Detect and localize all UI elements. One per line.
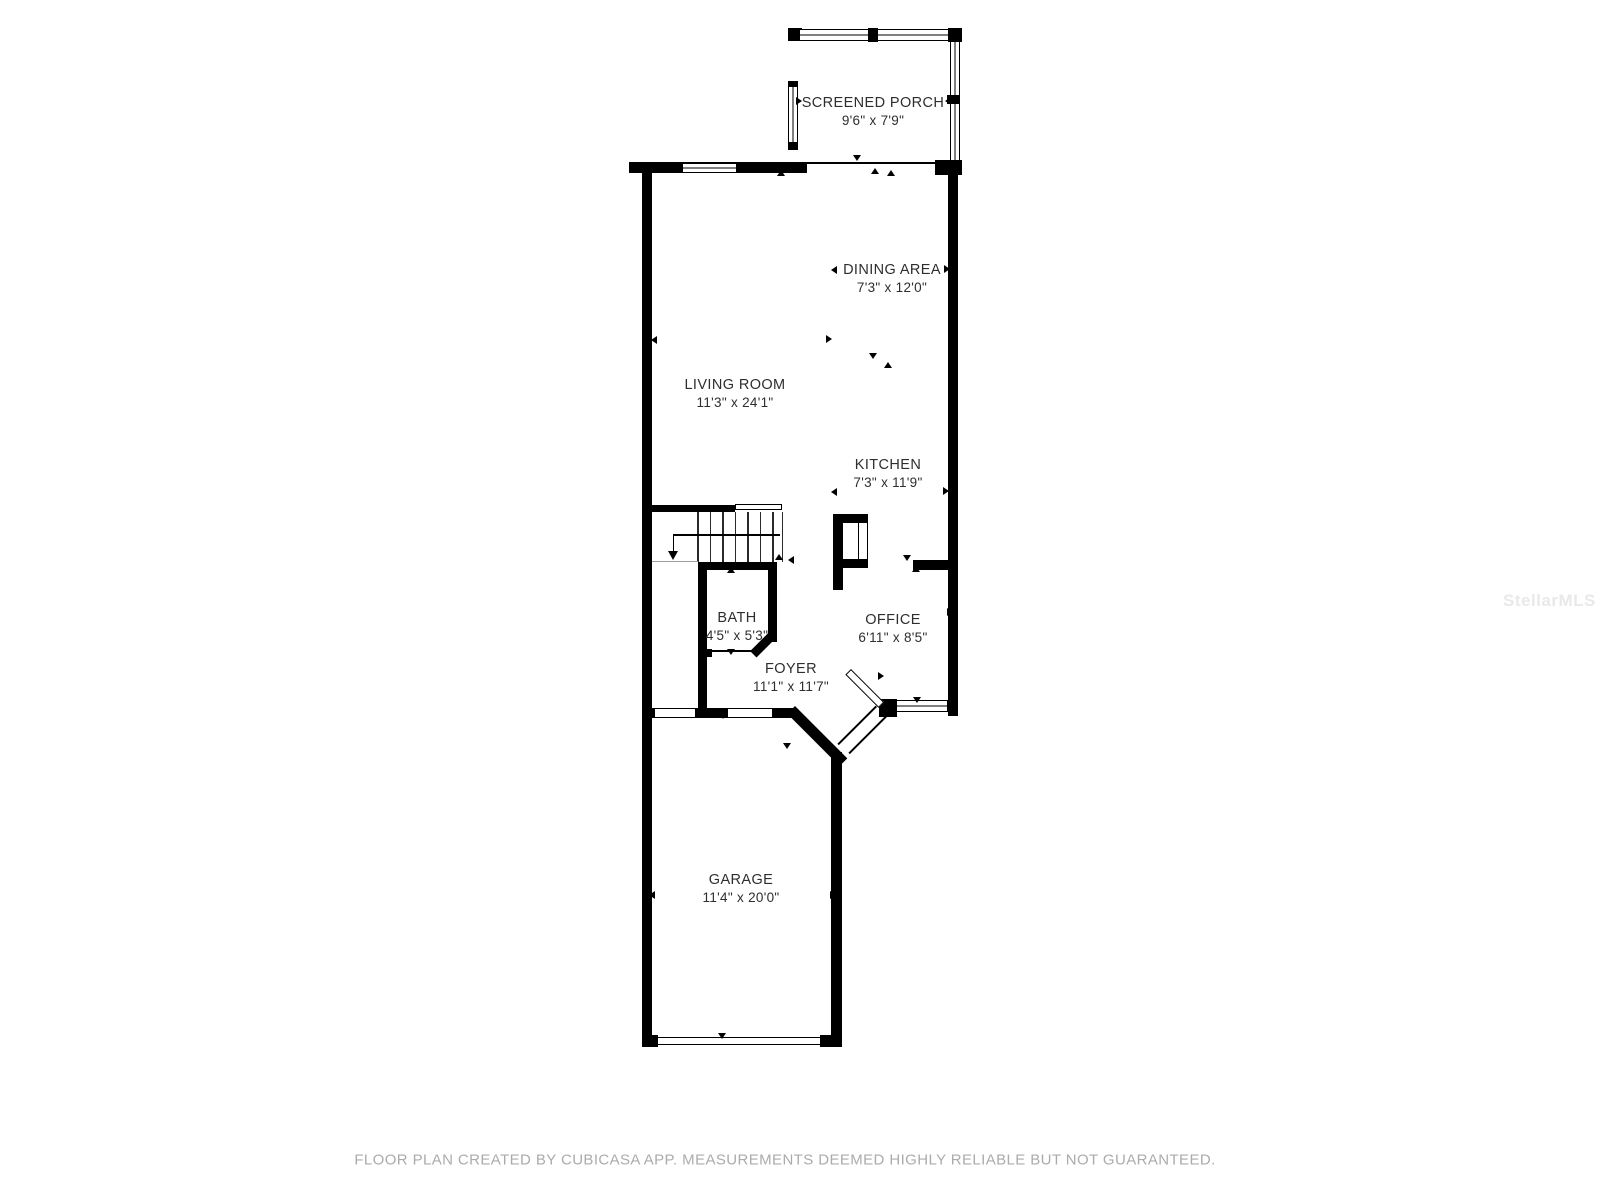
porch-sliding-door-threshold bbox=[807, 162, 938, 164]
entry-opening-edge-upper bbox=[838, 706, 877, 745]
room-dimensions: 11'4" x 20'0" bbox=[703, 890, 780, 905]
measurement-tick-icon bbox=[831, 266, 837, 274]
room-dimensions: 7'3" x 12'0" bbox=[843, 280, 941, 295]
porch-window-cap-left-top bbox=[788, 81, 798, 87]
room-label-living-room: LIVING ROOM 11'3" x 24'1" bbox=[684, 378, 785, 410]
garage-corner-bottom-right bbox=[820, 1035, 842, 1047]
measurement-tick-icon bbox=[943, 487, 949, 495]
footer-disclaimer: FLOOR PLAN CREATED BY CUBICASA APP. MEAS… bbox=[354, 1152, 1215, 1169]
stair-tread-line bbox=[772, 512, 774, 562]
room-label-garage: GARAGE 11'4" x 20'0" bbox=[703, 873, 780, 905]
wall-foyer-bottom-stub-left bbox=[642, 708, 655, 718]
measurement-tick-icon bbox=[830, 891, 836, 899]
stairs-direction-line-vertical bbox=[673, 534, 675, 552]
room-name: LIVING ROOM bbox=[684, 378, 785, 393]
window-foyer-garage bbox=[655, 708, 695, 718]
wall-kitchen-arm-bottom bbox=[843, 559, 868, 568]
room-label-foyer: FOYER 11'1" x 11'7" bbox=[753, 662, 829, 694]
measurement-tick-icon bbox=[945, 97, 951, 105]
room-name: OFFICE bbox=[858, 613, 927, 628]
room-name: KITCHEN bbox=[853, 458, 922, 473]
measurement-tick-icon bbox=[871, 168, 879, 174]
room-label-dining-area: DINING AREA 7'3" x 12'0" bbox=[843, 263, 941, 295]
room-name: FOYER bbox=[753, 662, 829, 677]
room-label-bath: BATH 4'5" x 5'3" bbox=[706, 611, 768, 643]
stair-tread-line bbox=[722, 512, 724, 562]
measurement-tick-icon bbox=[777, 170, 785, 176]
wall-bath-bottom-stub bbox=[698, 649, 712, 657]
measurement-tick-icon bbox=[947, 608, 953, 616]
measurement-tick-icon bbox=[727, 649, 735, 655]
room-label-kitchen: KITCHEN 7'3" x 11'9" bbox=[853, 458, 922, 490]
measurement-tick-icon bbox=[775, 554, 783, 560]
measurement-tick-icon bbox=[913, 697, 921, 703]
hallway-floor-line bbox=[652, 561, 698, 562]
stairs-down-arrow bbox=[668, 551, 678, 560]
measurement-tick-icon bbox=[727, 567, 735, 573]
measurement-tick-icon bbox=[788, 556, 794, 564]
stair-tread-line bbox=[760, 512, 762, 562]
garage-corner-bottom-left bbox=[642, 1035, 658, 1047]
room-name: DINING AREA bbox=[843, 263, 941, 278]
measurement-tick-icon bbox=[903, 555, 911, 561]
window-living-room-top bbox=[682, 163, 737, 173]
measurement-tick-icon bbox=[831, 488, 837, 496]
floor-plan-page: SCREENED PORCH 9'6" x 7'9" DINING AREA 7… bbox=[0, 0, 1600, 1200]
room-dimensions: 9'6" x 7'9" bbox=[802, 113, 945, 128]
kitchen-opening-frame bbox=[858, 522, 868, 560]
measurement-tick-icon bbox=[649, 891, 655, 899]
room-dimensions: 6'11" x 8'5" bbox=[858, 630, 927, 645]
porch-window-cap-left-bottom bbox=[788, 142, 798, 150]
wall-stairs-top bbox=[652, 505, 735, 512]
measurement-tick-icon bbox=[719, 713, 727, 719]
stair-tread-line bbox=[735, 512, 737, 562]
entry-opening-edge-lower bbox=[849, 715, 888, 754]
stair-tread-line bbox=[710, 512, 712, 562]
room-name: SCREENED PORCH bbox=[802, 96, 945, 111]
measurement-tick-icon bbox=[698, 673, 704, 681]
wall-garage-right bbox=[831, 752, 842, 1047]
measurement-tick-icon bbox=[878, 672, 884, 680]
room-dimensions: 7'3" x 11'9" bbox=[853, 475, 922, 490]
measurement-tick-icon bbox=[718, 1033, 726, 1039]
porch-screen-window-left bbox=[788, 85, 798, 143]
measurement-tick-icon bbox=[887, 170, 895, 176]
porch-window-mullion-top bbox=[868, 28, 878, 42]
porch-corner-top-right bbox=[948, 28, 962, 42]
room-name: GARAGE bbox=[703, 873, 780, 888]
stair-tread-line bbox=[697, 512, 699, 562]
stairs-railing bbox=[735, 504, 782, 510]
measurement-tick-icon bbox=[944, 265, 950, 273]
room-name: BATH bbox=[706, 611, 768, 626]
measurement-tick-icon bbox=[884, 362, 892, 368]
measurement-tick-icon bbox=[912, 566, 920, 572]
measurement-tick-icon bbox=[783, 743, 791, 749]
room-label-office: OFFICE 6'11" x 8'5" bbox=[858, 613, 927, 645]
wall-bath-top bbox=[698, 562, 777, 570]
measurement-tick-icon bbox=[651, 336, 657, 344]
wall-main-right bbox=[948, 162, 958, 716]
measurement-tick-icon bbox=[853, 155, 861, 161]
room-dimensions: 11'1" x 11'7" bbox=[753, 679, 829, 694]
stellar-mls-watermark: StellarMLS bbox=[1503, 591, 1596, 611]
room-label-screened-porch: SCREENED PORCH 9'6" x 7'9" bbox=[802, 96, 945, 128]
room-dimensions: 11'3" x 24'1" bbox=[684, 395, 785, 410]
room-dimensions: 4'5" x 5'3" bbox=[706, 628, 768, 643]
stairs-direction-line-horizontal bbox=[673, 534, 780, 536]
stair-tread-line bbox=[747, 512, 749, 562]
wall-main-left bbox=[642, 162, 652, 1047]
wall-kitchen-vertical bbox=[833, 514, 843, 590]
measurement-tick-icon bbox=[826, 335, 832, 343]
measurement-tick-icon bbox=[869, 353, 877, 359]
garage-entry-door-opening bbox=[728, 708, 772, 718]
garage-door-band bbox=[658, 1037, 820, 1045]
